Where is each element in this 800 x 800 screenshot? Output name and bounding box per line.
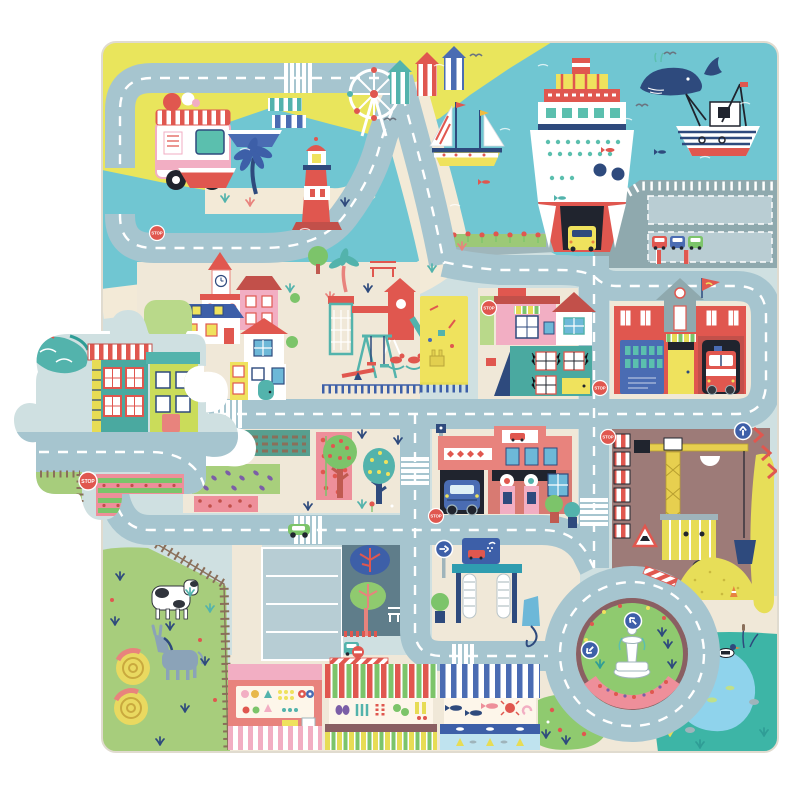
fire-truck: [706, 346, 736, 395]
fuel-pump: [524, 474, 539, 514]
puzzle-scene: STOP STOP STOP STOP STOP: [0, 0, 800, 800]
svg-text:STOP: STOP: [430, 514, 442, 519]
stop-sign: STOP: [593, 381, 608, 396]
svg-text:STOP: STOP: [81, 479, 95, 485]
parked-car-blue: [670, 236, 685, 250]
stop-sign: STOP: [429, 509, 444, 524]
arrow-sign: [735, 423, 752, 440]
icecream-scoop-icon: [163, 93, 181, 111]
roundabout-island: [576, 598, 688, 710]
arrow-sign: [582, 642, 599, 659]
sandbox: [420, 296, 468, 388]
svg-text:STOP: STOP: [483, 306, 495, 311]
arrow-sign: [625, 613, 642, 630]
parked-car-red: [652, 236, 667, 250]
svg-text:STOP: STOP: [594, 386, 606, 391]
stop-sign: STOP: [482, 301, 497, 316]
fish-stall: [440, 664, 540, 750]
parking-bay: [648, 196, 772, 224]
vegetable-stall: [325, 664, 437, 750]
svg-text:STOP: STOP: [151, 231, 163, 236]
tree-park: [342, 540, 402, 636]
piece-field: [12, 472, 82, 524]
car-in-ferry: [568, 226, 596, 252]
svg-text:STOP: STOP: [602, 435, 614, 440]
gas-station: [436, 424, 580, 528]
stop-sign: STOP: [79, 472, 97, 490]
stop-sign: STOP: [150, 226, 165, 241]
parked-car-green: [688, 236, 703, 250]
blue-car: [444, 480, 480, 515]
pink-house: [480, 288, 596, 345]
piece-teal-house: [88, 344, 152, 432]
puzzle-product-image: STOP STOP STOP STOP STOP: [0, 0, 800, 800]
fuel-pump: [500, 474, 515, 514]
bakery-stall: [228, 664, 322, 750]
radish-bed: [194, 496, 258, 512]
farm: [102, 540, 230, 752]
parking-bay: [648, 232, 772, 262]
tree: [308, 246, 328, 266]
parking-lot: [262, 548, 342, 660]
side-door: [668, 350, 694, 394]
stop-sign: STOP: [601, 430, 616, 445]
